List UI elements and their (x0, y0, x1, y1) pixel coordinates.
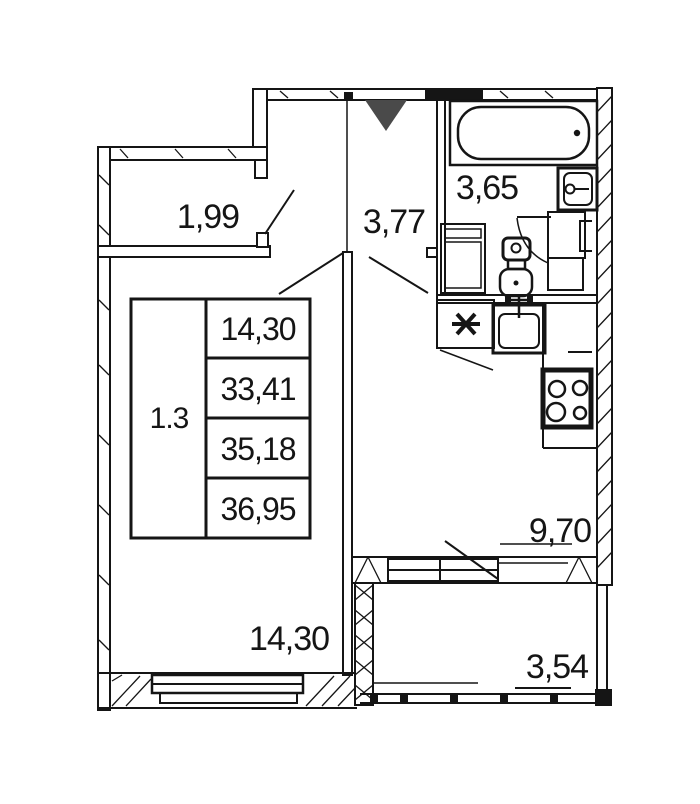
room-label-balcony: 3,54 (526, 648, 588, 686)
stamp-area-row-2: 33,41 (220, 371, 295, 407)
bathtub-icon (450, 101, 597, 165)
room-label-wardrobe: 1,99 (177, 198, 239, 236)
washing-machine-icon (441, 224, 485, 293)
bottom-wall-hatching (112, 675, 355, 706)
stamp-plan-code: 1.3 (150, 402, 189, 435)
kitchen-window-icon (388, 559, 498, 581)
bathroom-door-swing-icon (517, 217, 551, 263)
bathroom-door-jamb (427, 248, 437, 257)
kitchen-door-swing-icon (369, 257, 428, 293)
vent-shaft-front (440, 350, 493, 370)
room-label-bathroom: 3,65 (456, 169, 518, 207)
floor-plan-page: 1,99 3,77 3,65 9,70 14,30 3,54 1.3 14,30… (0, 0, 700, 804)
wardrobe-door-swing-icon (265, 190, 294, 234)
floor-plan: 1,99 3,77 3,65 9,70 14,30 3,54 1.3 14,30… (0, 0, 700, 804)
stamp-area-row-3: 35,18 (220, 431, 295, 467)
bottom-wall (98, 673, 357, 708)
wardrobe-door-jamb-top (255, 160, 267, 178)
middle-wall (343, 92, 353, 675)
kitchen-sink-icon (493, 295, 545, 353)
entrance-marker-icon (365, 100, 407, 131)
room-label-hallway: 3,77 (363, 203, 425, 241)
bathtub-drain (574, 130, 580, 136)
vent-shaft-icon (437, 300, 494, 370)
boiler-icon (548, 212, 592, 290)
stamp-total-area: 36,95 (220, 491, 295, 527)
stove-icon (543, 370, 591, 427)
wardrobe-door-jamb-bottom (257, 233, 268, 247)
bathroom-sink-icon (558, 168, 597, 210)
living-room-door-swing-icon (279, 253, 343, 294)
asterisk-icon (452, 314, 480, 334)
stamp-living-area: 14,30 (220, 311, 295, 347)
living-room-window-icon (152, 675, 303, 703)
top-wall-solid-segment (425, 89, 483, 99)
room-label-living-room: 14,30 (249, 620, 329, 658)
balcony-walls (355, 583, 612, 706)
room-label-kitchen: 9,70 (529, 512, 591, 550)
